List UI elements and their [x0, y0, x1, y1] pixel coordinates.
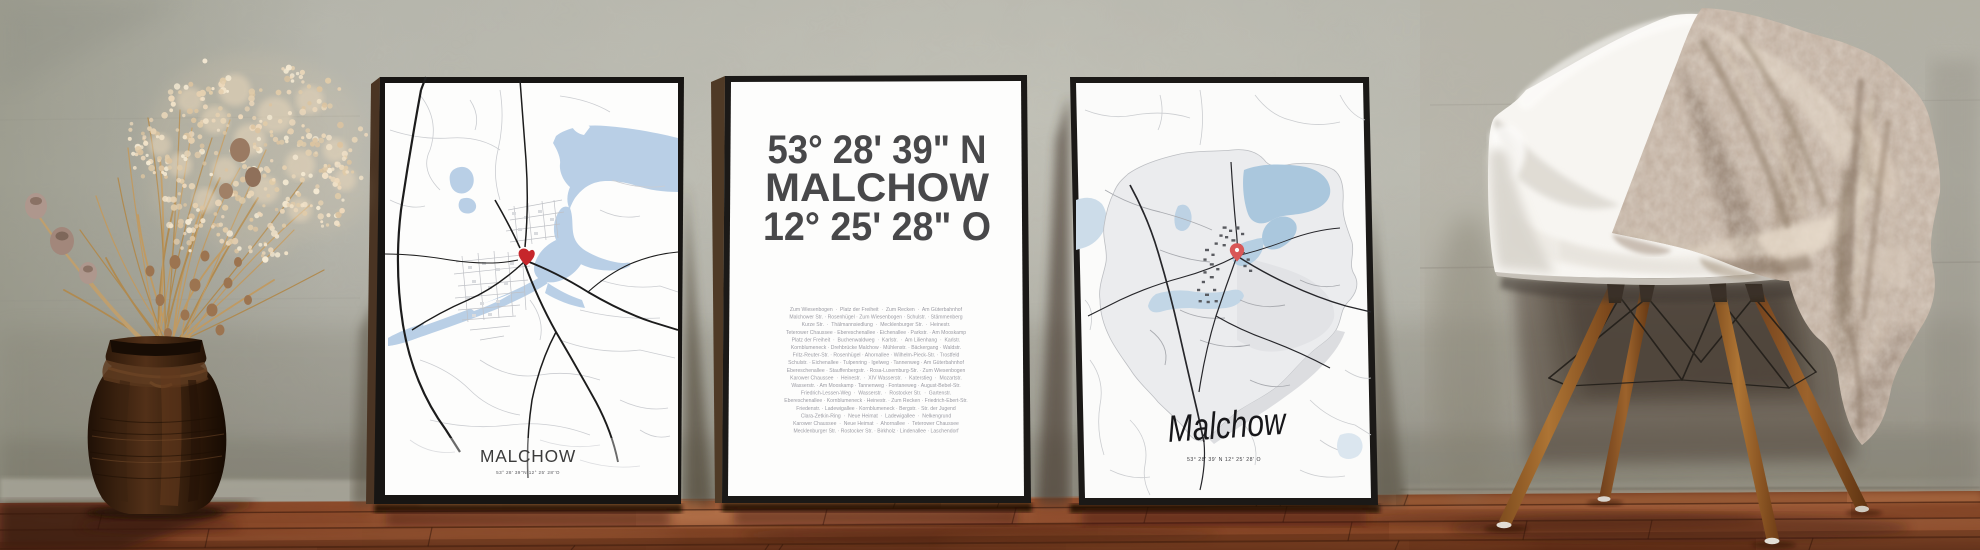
svg-text:Kornblumeneck · Drehbrücke Mal: Kornblumeneck · Drehbrücke Malchow · Müh… [791, 345, 961, 351]
svg-text:Karower Chaussee · Neue Heim: Karower Chaussee · Neue Heimat · Ahornal… [793, 421, 959, 427]
svg-text:MALCHOW: MALCHOW [765, 166, 989, 210]
svg-text:53° 28' 39''N 12° 25' 28''O: 53° 28' 39''N 12° 25' 28''O [496, 470, 560, 475]
svg-text:Friedrich-Lessen-Weg · Wasse: Friedrich-Lessen-Weg · Wasserstr. · Rost… [801, 391, 951, 397]
svg-text:12° 25' 28" O: 12° 25' 28" O [763, 205, 991, 249]
svg-text:Schulstr. · Eichenallee · Tulp: Schulstr. · Eichenallee · Tulpenring · I… [788, 360, 964, 366]
svg-text:Friedenstr. · Ladewigallee · K: Friedenstr. · Ladewigallee · Kornblumene… [796, 406, 956, 412]
svg-text:53° 28' 39' N 12° 25' 28' O: 53° 28' 39' N 12° 25' 28' O [1187, 457, 1261, 463]
svg-text:Fritz-Reuter-Str. · Rosenhügel: Fritz-Reuter-Str. · Rosenhügel · Ahornal… [793, 353, 960, 359]
svg-text:MALCHOW: MALCHOW [480, 446, 576, 466]
svg-text:Kurze Str. · Thälmannsiedlun: Kurze Str. · Thälmannsiedlung · Mecklenb… [802, 322, 951, 328]
svg-text:Malchower Str. · Rosenhügel ·: Malchower Str. · Rosenhügel · Zum Wiesen… [789, 315, 962, 321]
svg-text:Platz der Freiheit · Buchenw: Platz der Freiheit · Buchenwaldweg · Kar… [792, 337, 961, 343]
svg-text:Wasserstr. · Am Mooskamp · Tan: Wasserstr. · Am Mooskamp · Tannenweg · F… [791, 383, 960, 389]
svg-text:Clara-Zetkin-Ring · Neue Hei: Clara-Zetkin-Ring · Neue Heimat · Ladewi… [801, 413, 951, 419]
svg-text:Ebereschenallee · Kornblumenec: Ebereschenallee · Kornblumeneck · Heines… [784, 398, 967, 404]
svg-text:Teterower Chaussee · Eberesche: Teterower Chaussee · Ebereschenallee · E… [786, 330, 966, 336]
svg-text:Zum Wiesenbogen · Platz der: Zum Wiesenbogen · Platz der Freiheit · Z… [790, 307, 963, 313]
svg-text:Karower Chaussee · Heinestr.: Karower Chaussee · Heinestr. · XIV Wasse… [790, 375, 962, 381]
svg-text:Mecklenburger Str. · Rostocker: Mecklenburger Str. · Rostocker Str. · Bi… [793, 429, 959, 435]
svg-text:Malchow: Malchow [1166, 401, 1289, 451]
svg-text:Ebereschenallee · Stauffenberg: Ebereschenallee · Stauffenbergstr. · Ros… [787, 368, 966, 374]
